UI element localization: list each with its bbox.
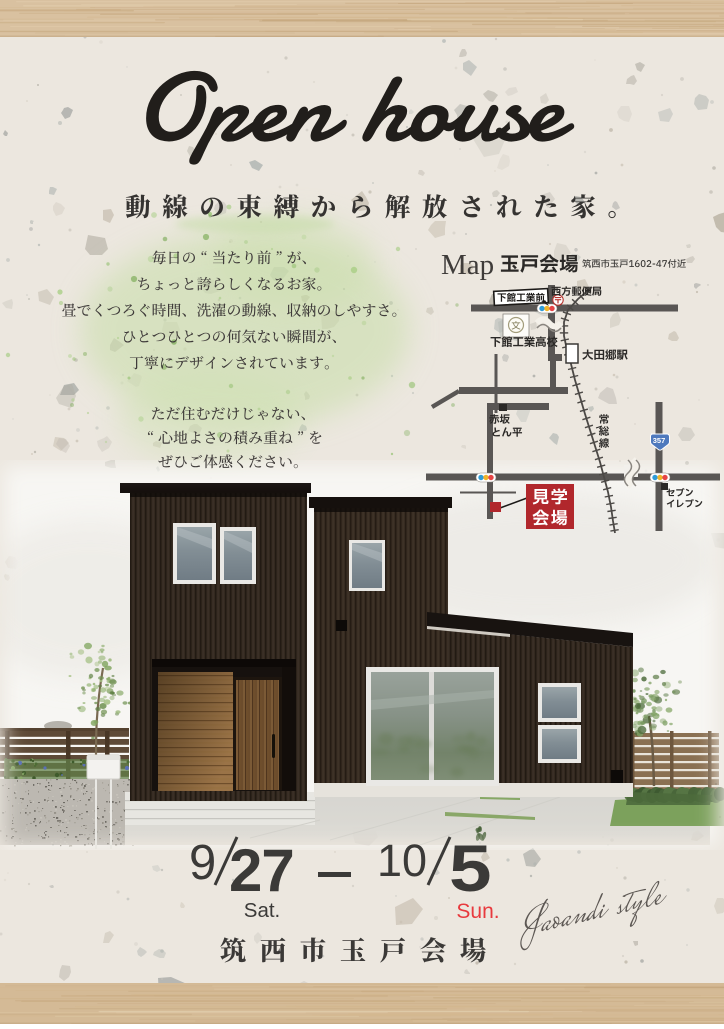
svg-text:9: 9 xyxy=(189,836,216,890)
svg-text:357: 357 xyxy=(653,436,666,445)
svg-text:Sun.: Sun. xyxy=(456,900,499,923)
svg-text:Sat.: Sat. xyxy=(244,899,280,922)
svg-text:10: 10 xyxy=(377,835,427,886)
svg-text:5: 5 xyxy=(449,832,492,906)
svg-text:27: 27 xyxy=(229,837,294,904)
svg-text:Map: Map xyxy=(441,249,494,281)
